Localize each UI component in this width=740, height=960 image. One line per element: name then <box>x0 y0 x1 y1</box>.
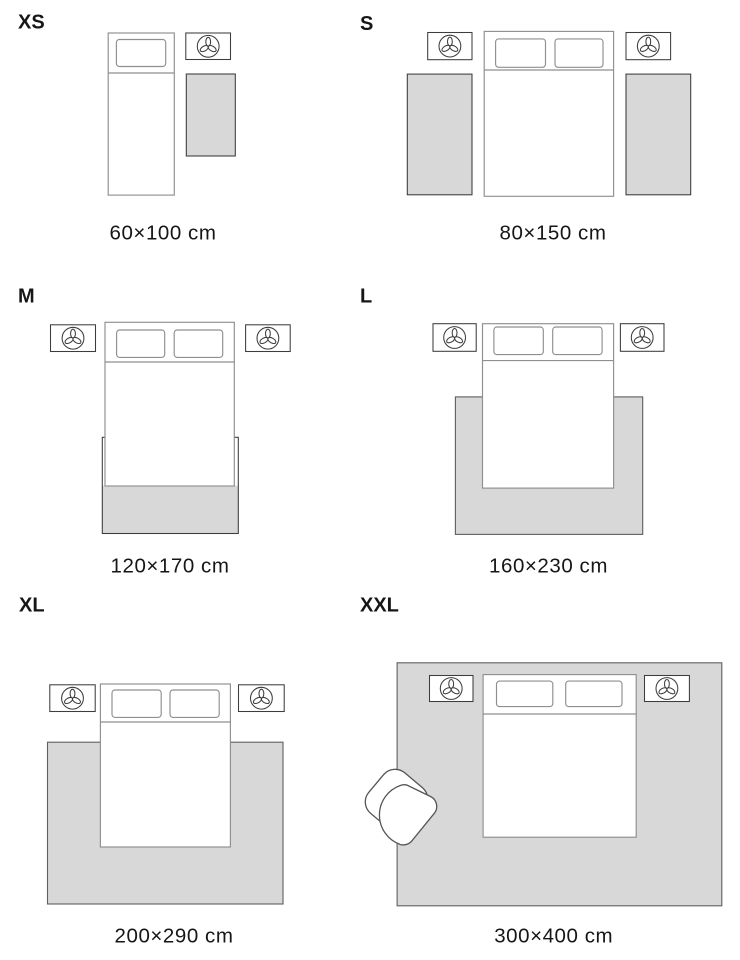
svg-text:60×100 cm: 60×100 cm <box>110 222 217 245</box>
svg-text:XL: XL <box>19 595 45 617</box>
svg-text:L: L <box>360 286 372 308</box>
svg-text:S: S <box>360 13 373 35</box>
svg-text:XXL: XXL <box>360 595 399 617</box>
svg-text:300×400 cm: 300×400 cm <box>494 924 613 947</box>
svg-text:XS: XS <box>18 12 45 34</box>
svg-text:120×170 cm: 120×170 cm <box>111 554 230 577</box>
svg-text:200×290 cm: 200×290 cm <box>115 924 234 947</box>
svg-text:80×150 cm: 80×150 cm <box>500 222 607 245</box>
svg-text:160×230 cm: 160×230 cm <box>489 554 608 577</box>
svg-text:M: M <box>18 286 35 308</box>
